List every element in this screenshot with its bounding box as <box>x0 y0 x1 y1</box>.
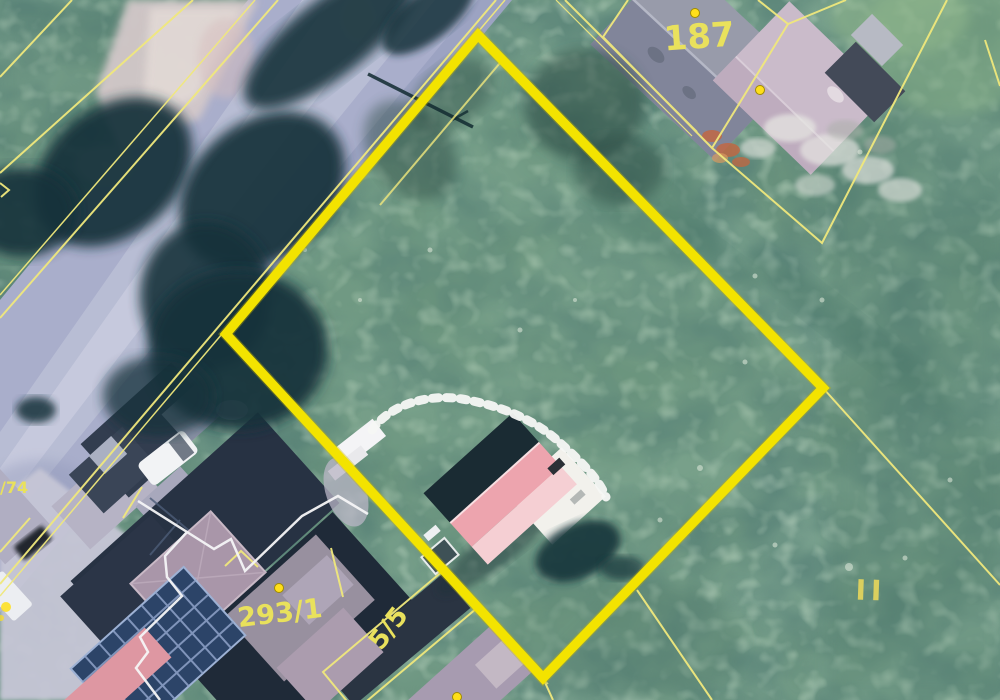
aerial-map-view[interactable]: 187 293/1 5/5 /74 II <box>0 0 1000 700</box>
satellite-canvas[interactable]: 187 293/1 5/5 /74 II <box>0 0 1000 700</box>
parcel-label-74: /74 <box>0 478 28 497</box>
section-marker-II: II <box>855 573 887 607</box>
parcel-label-187: 187 <box>662 15 736 60</box>
